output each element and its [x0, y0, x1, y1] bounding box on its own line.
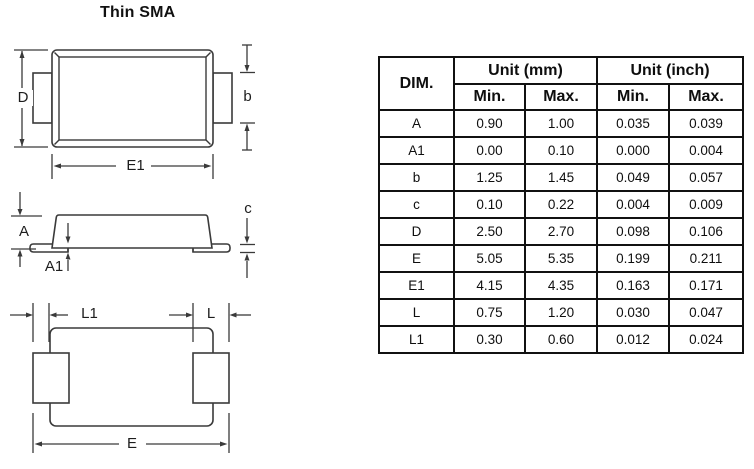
cell-inch-min: 0.030 — [597, 299, 669, 326]
cell-inch-max: 0.039 — [669, 110, 743, 137]
top-view-package — [33, 50, 232, 147]
cell-dim: D — [379, 218, 454, 245]
header-mm-min: Min. — [454, 84, 525, 110]
dim-label-l: L — [202, 306, 220, 322]
header-unit-inch: Unit (inch) — [597, 57, 743, 84]
arrowhead-up — [20, 51, 25, 59]
cell-mm-max: 1.45 — [525, 164, 597, 191]
dim-label-b: b — [238, 89, 257, 105]
cell-mm-min: 4.15 — [454, 272, 525, 299]
arrowhead-left — [50, 313, 57, 318]
table-header-row: DIM. Unit (mm) Unit (inch) — [379, 57, 743, 84]
cell-inch-max: 0.004 — [669, 137, 743, 164]
cell-mm-min: 0.00 — [454, 137, 525, 164]
cell-dim: L1 — [379, 326, 454, 353]
cell-mm-min: 1.25 — [454, 164, 525, 191]
right-lead — [213, 73, 232, 123]
cell-inch-min: 0.163 — [597, 272, 669, 299]
table-row: E 5.05 5.35 0.199 0.211 — [379, 245, 743, 272]
arrowhead-right — [220, 442, 228, 447]
arrowhead-left — [230, 313, 237, 318]
cell-inch-max: 0.171 — [669, 272, 743, 299]
side-view-package — [30, 215, 230, 252]
cell-inch-max: 0.047 — [669, 299, 743, 326]
arrowhead-left — [54, 164, 62, 169]
dim-label-e1: E1 — [120, 158, 151, 174]
cell-mm-min: 0.90 — [454, 110, 525, 137]
arrowhead-down — [245, 65, 250, 72]
cell-mm-min: 0.10 — [454, 191, 525, 218]
package-body-bottom — [50, 328, 213, 426]
arrowhead-up — [245, 254, 250, 261]
arrowhead-down — [245, 237, 250, 244]
page-title: Thin SMA — [100, 4, 190, 22]
cell-inch-max: 0.009 — [669, 191, 743, 218]
header-dim: DIM. — [379, 57, 454, 110]
cell-dim: b — [379, 164, 454, 191]
cell-mm-max: 0.10 — [525, 137, 597, 164]
table-row: A 0.90 1.00 0.035 0.039 — [379, 110, 743, 137]
cell-inch-min: 0.199 — [597, 245, 669, 272]
cell-mm-max: 1.20 — [525, 299, 597, 326]
cell-mm-max: 2.70 — [525, 218, 597, 245]
table-row: c 0.10 0.22 0.004 0.009 — [379, 191, 743, 218]
cell-mm-min: 0.30 — [454, 326, 525, 353]
table-row: L 0.75 1.20 0.030 0.047 — [379, 299, 743, 326]
cell-mm-max: 4.35 — [525, 272, 597, 299]
dim-label-c: c — [240, 201, 256, 217]
side-view-drawing — [0, 190, 262, 290]
cell-inch-min: 0.012 — [597, 326, 669, 353]
arrowhead-down — [18, 209, 23, 216]
cell-mm-min: 0.75 — [454, 299, 525, 326]
cell-mm-max: 0.22 — [525, 191, 597, 218]
table-row: L1 0.30 0.60 0.012 0.024 — [379, 326, 743, 353]
cell-dim: c — [379, 191, 454, 218]
cell-dim: L — [379, 299, 454, 326]
dim-label-a: A — [14, 224, 34, 240]
cell-inch-max: 0.057 — [669, 164, 743, 191]
table-row: D 2.50 2.70 0.098 0.106 — [379, 218, 743, 245]
bottom-view-package — [33, 328, 229, 426]
arrowhead-right — [26, 313, 33, 318]
dim-label-d: D — [13, 90, 33, 106]
cell-mm-max: 5.35 — [525, 245, 597, 272]
arrowhead-up — [18, 250, 23, 257]
cell-inch-max: 0.106 — [669, 218, 743, 245]
arrowhead-down — [20, 139, 25, 147]
cell-inch-min: 0.049 — [597, 164, 669, 191]
arrowhead-left — [35, 442, 43, 447]
package-outline-page: Thin SMA — [0, 0, 754, 469]
arrowhead-right — [186, 313, 193, 318]
package-body-side — [52, 215, 212, 248]
cell-inch-min: 0.004 — [597, 191, 669, 218]
cell-inch-min: 0.098 — [597, 218, 669, 245]
table-row: E1 4.15 4.35 0.163 0.171 — [379, 272, 743, 299]
dim-label-l1: L1 — [76, 306, 103, 322]
cell-mm-max: 0.60 — [525, 326, 597, 353]
right-pad — [193, 353, 229, 403]
arrowhead-right — [204, 164, 212, 169]
dim-label-a1: A1 — [41, 259, 67, 275]
header-mm-max: Max. — [525, 84, 597, 110]
cell-inch-min: 0.000 — [597, 137, 669, 164]
cell-dim: A1 — [379, 137, 454, 164]
left-pad — [33, 353, 69, 403]
cell-dim: E1 — [379, 272, 454, 299]
cell-dim: A — [379, 110, 454, 137]
header-unit-mm: Unit (mm) — [454, 57, 597, 84]
cell-mm-min: 2.50 — [454, 218, 525, 245]
header-inch-min: Min. — [597, 84, 669, 110]
header-inch-max: Max. — [669, 84, 743, 110]
cell-mm-min: 5.05 — [454, 245, 525, 272]
dim-label-e: E — [122, 436, 142, 452]
cell-dim: E — [379, 245, 454, 272]
cell-inch-min: 0.035 — [597, 110, 669, 137]
cell-inch-max: 0.024 — [669, 326, 743, 353]
dimension-c — [240, 218, 255, 278]
cell-mm-max: 1.00 — [525, 110, 597, 137]
left-lead — [33, 73, 52, 123]
dimension-table: DIM. Unit (mm) Unit (inch) Min. Max. Min… — [378, 56, 744, 354]
arrowhead-up — [245, 124, 250, 132]
table-row: b 1.25 1.45 0.049 0.057 — [379, 164, 743, 191]
cell-inch-max: 0.211 — [669, 245, 743, 272]
table-row: A1 0.00 0.10 0.000 0.004 — [379, 137, 743, 164]
package-body-outer — [52, 50, 213, 147]
